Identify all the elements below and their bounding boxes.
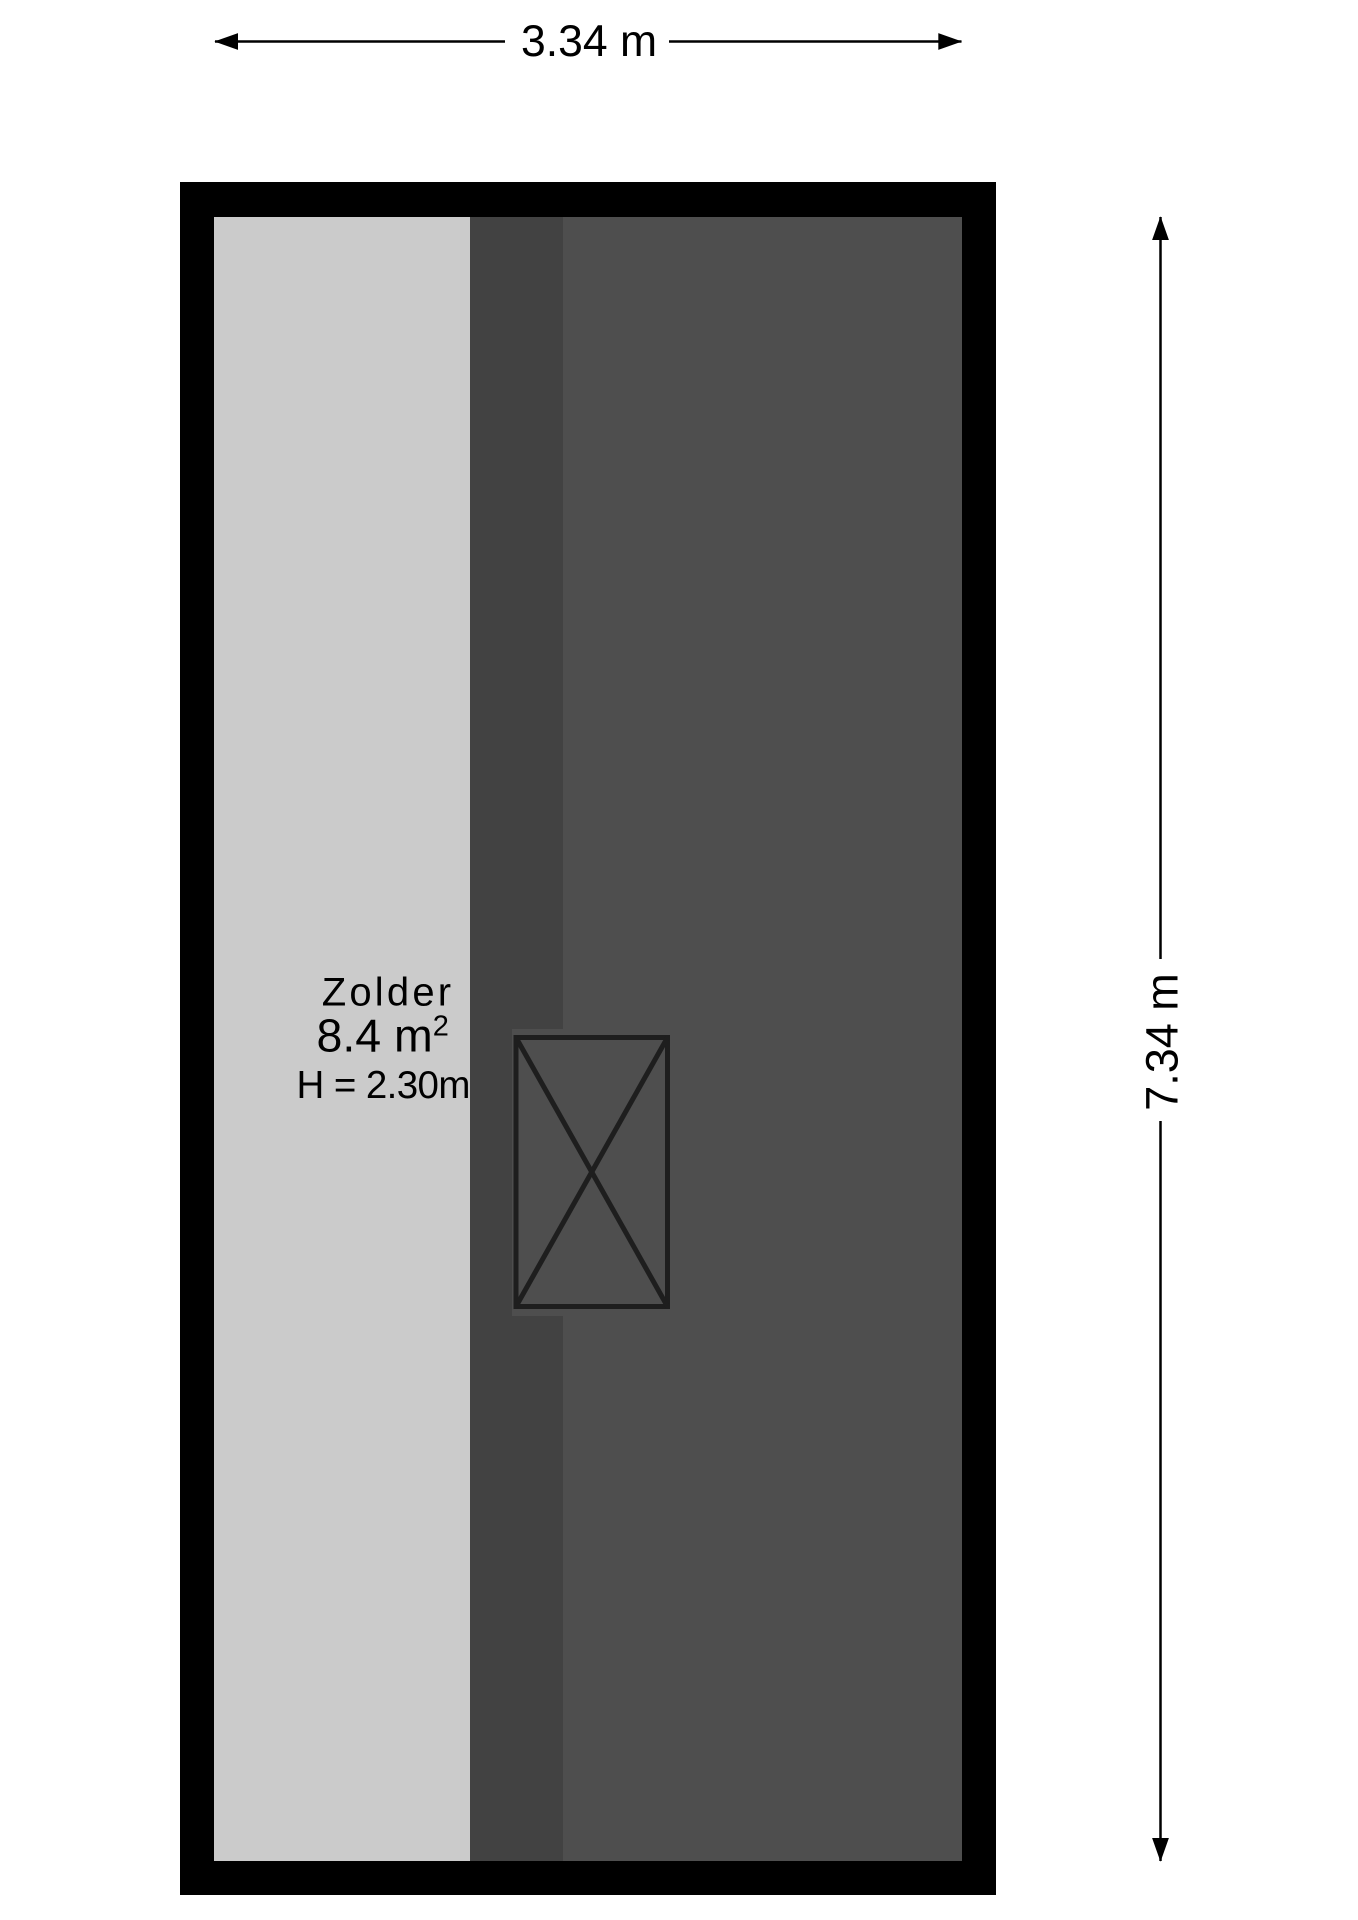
svg-text:H = 2.30m: H = 2.30m xyxy=(297,1064,470,1107)
svg-text:Zolder: Zolder xyxy=(322,971,455,1015)
svg-text:3.34 m: 3.34 m xyxy=(521,17,657,66)
svg-text:8.4 m2: 8.4 m2 xyxy=(316,1009,448,1061)
svg-text:7.34 m: 7.34 m xyxy=(1137,973,1188,1111)
